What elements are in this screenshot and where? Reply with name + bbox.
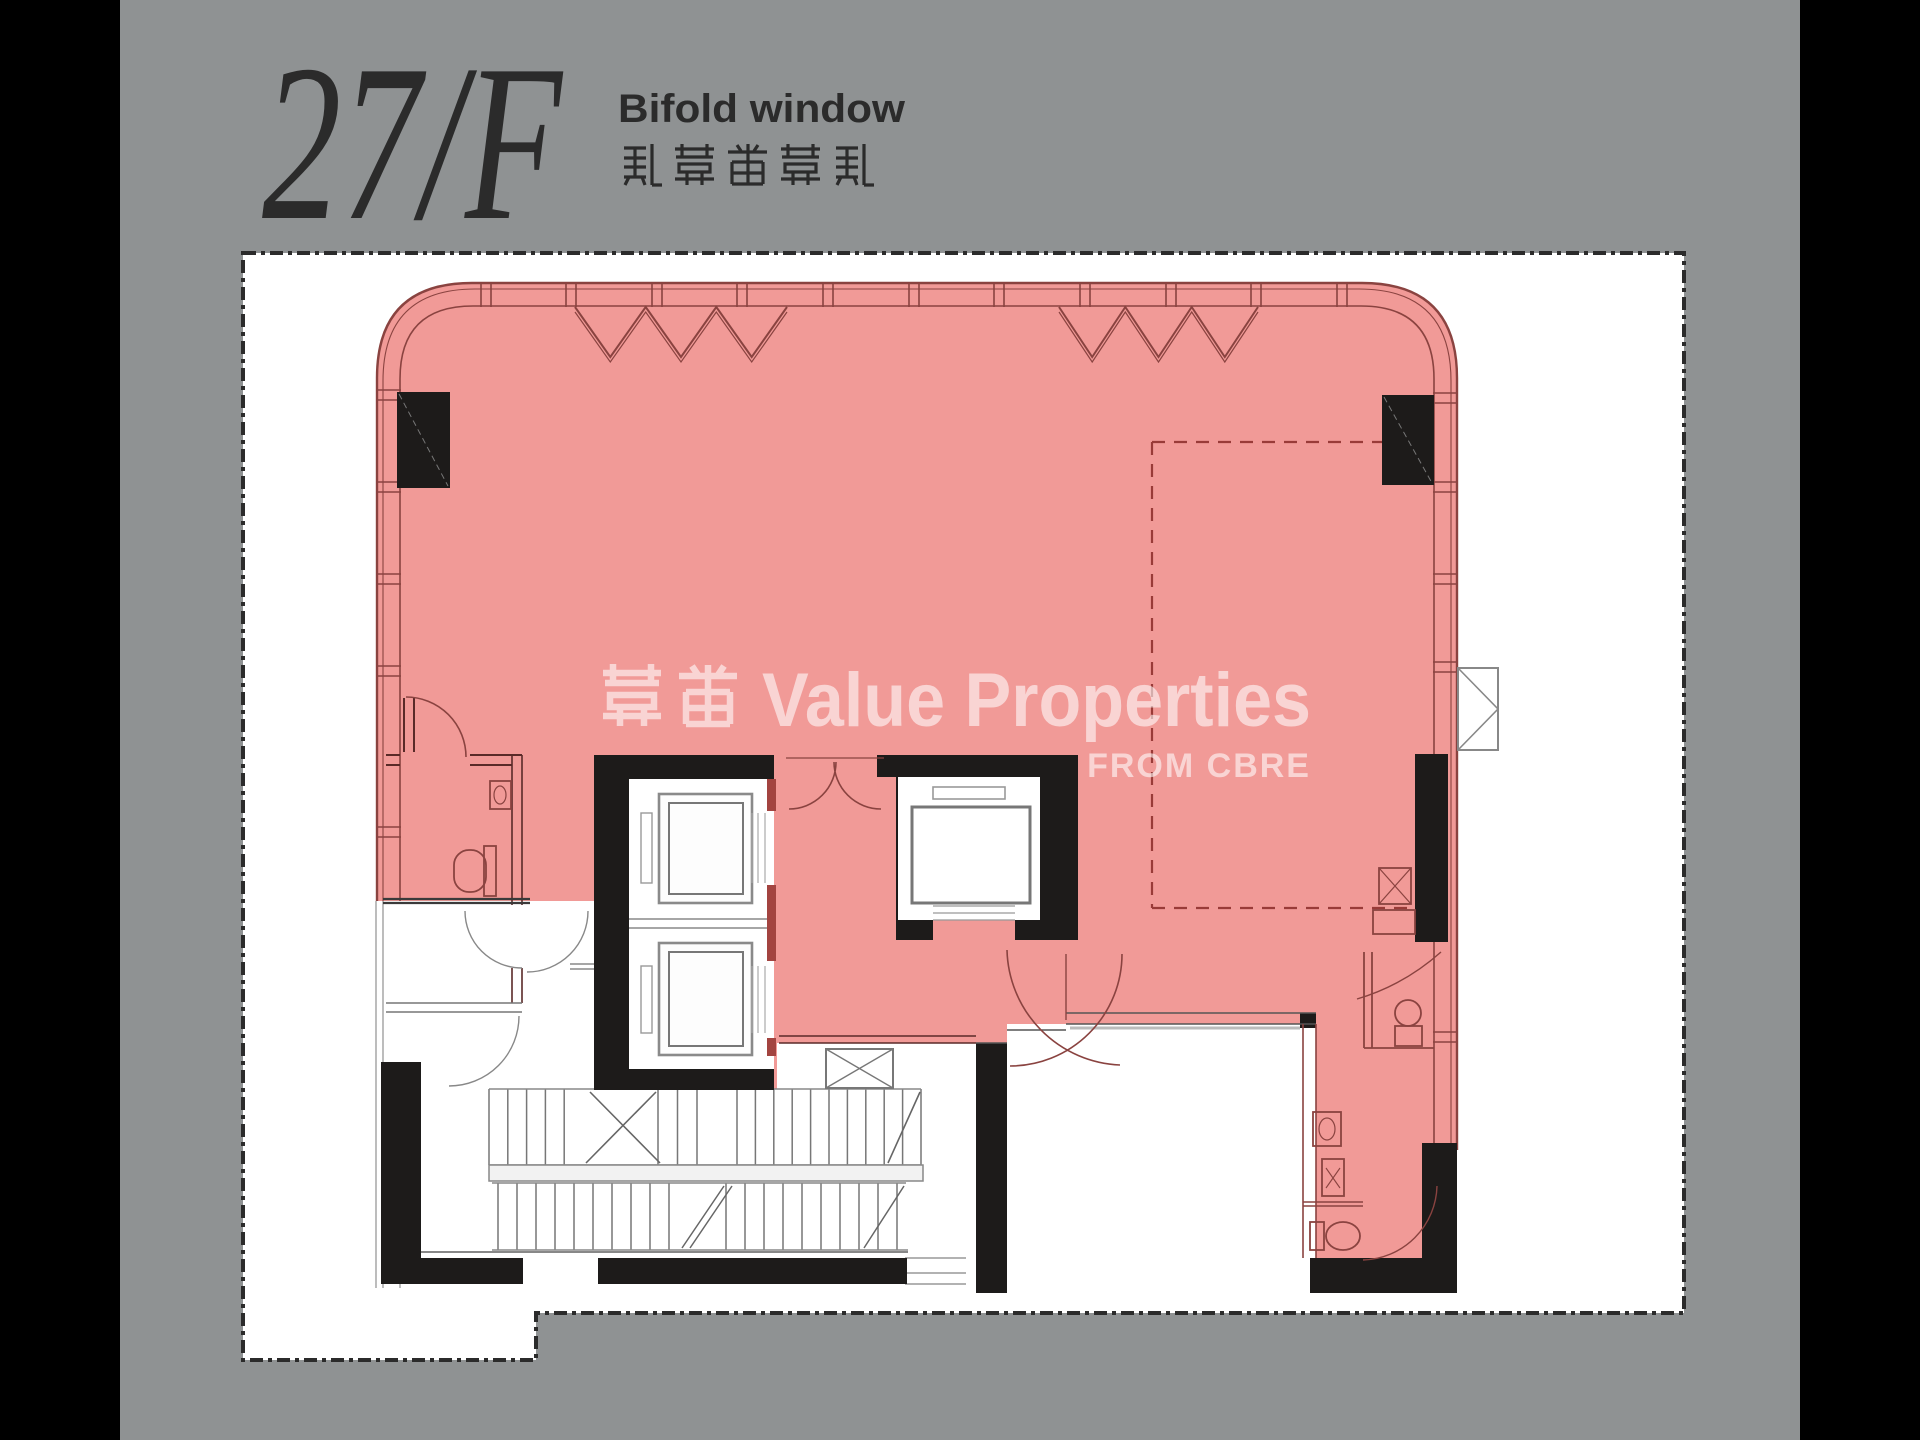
svg-text:FROM CBRE: FROM CBRE (1087, 747, 1311, 785)
svg-text:27/F: 27/F (262, 19, 564, 267)
svg-text:Value Properties: Value Properties (762, 658, 1311, 743)
svg-text:Bifold window: Bifold window (618, 87, 906, 131)
